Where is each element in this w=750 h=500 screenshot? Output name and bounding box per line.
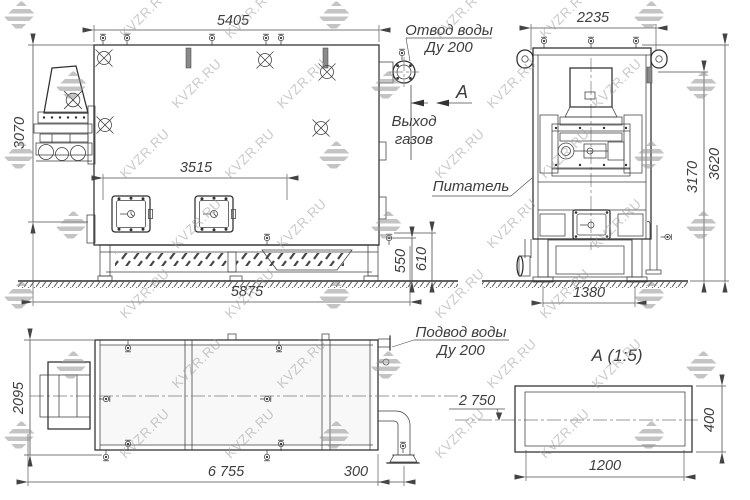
- detail-title: А (1:5): [590, 346, 642, 365]
- dim-610: 610: [414, 247, 430, 271]
- dim-1380: 1380: [573, 285, 605, 301]
- dim-2235: 2235: [576, 10, 610, 26]
- gas-exit-line2: газов: [395, 131, 433, 148]
- feeder-text: Питатель: [433, 178, 510, 195]
- water-inlet-label: Подвод воды Ду 200: [392, 324, 509, 359]
- side-boiler-body: [94, 45, 379, 245]
- side-feeder-unit: [34, 66, 95, 243]
- gas-exit-line1: Выход: [391, 113, 436, 130]
- dim-2750: 2 750: [458, 393, 495, 409]
- access-door: [195, 196, 236, 232]
- front-base: [533, 239, 647, 282]
- position-marks: [96, 50, 336, 137]
- side-view: А Выход газов Отвод воды Ду 200 5405 307…: [12, 13, 493, 306]
- dim-3170: 3170: [685, 161, 701, 193]
- water-outlet-line1: Отвод воды: [405, 22, 493, 39]
- dim-6755: 6 755: [208, 464, 245, 480]
- plan-feeder-box: [40, 362, 90, 429]
- water-outlet-label: Отвод воды Ду 200: [405, 22, 493, 61]
- water-outlet-line2: Ду 200: [423, 39, 473, 56]
- dim-3515: 3515: [180, 160, 213, 176]
- water-inlet-line1: Подвод воды: [416, 324, 507, 341]
- section-a-marks: А: [411, 82, 472, 106]
- dim-300: 300: [344, 464, 368, 480]
- drawing-sheet: А Выход газов Отвод воды Ду 200 5405 307…: [0, 0, 750, 500]
- water-inlet-elbow: [378, 411, 419, 463]
- detail-duct-inner: [525, 392, 685, 446]
- side-base-frame: [98, 234, 392, 281]
- lifting-slot: [323, 48, 328, 68]
- dim-1200: 1200: [589, 458, 621, 474]
- lifting-slot: [186, 48, 191, 68]
- water-inlet-line2: Ду 200: [435, 342, 485, 359]
- gas-exit-label: Выход газов: [391, 113, 436, 148]
- level-mark: 2 750: [449, 393, 505, 421]
- feeder-label: Питатель: [432, 178, 532, 196]
- detail-dimensions: 1200 400: [526, 386, 726, 481]
- dim-5405: 5405: [217, 13, 250, 29]
- side-top-valves: [100, 34, 284, 45]
- access-door: [112, 196, 153, 232]
- dim-3620: 3620: [707, 148, 723, 180]
- drawing-svg: А Выход газов Отвод воды Ду 200 5405 307…: [0, 0, 750, 500]
- dim-5875: 5875: [231, 284, 264, 300]
- dim-400: 400: [702, 408, 718, 432]
- detail-view-a: А (1:5) 2 750 1200 400: [449, 346, 726, 481]
- dim-2095: 2095: [11, 381, 27, 415]
- feeder-machinery: [538, 115, 646, 210]
- dim-550: 550: [393, 249, 409, 273]
- detail-duct-outer: [515, 386, 692, 452]
- water-inlet-stub: [378, 336, 390, 365]
- plan-view: Подвод воды Ду 200 2095 6 755 300: [11, 324, 509, 486]
- front-view: Питатель 2235 1380 3170 3620: [432, 10, 729, 307]
- dim-3070: 3070: [12, 117, 28, 149]
- front-door-row: [540, 210, 643, 239]
- section-letter: А: [455, 82, 468, 102]
